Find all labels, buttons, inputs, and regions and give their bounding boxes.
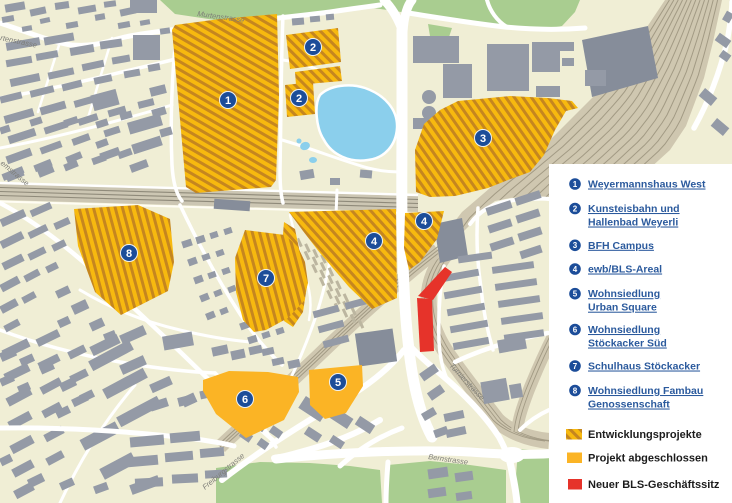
svg-text:3: 3 [573,241,578,250]
svg-text:ewb/BLS-Areal: ewb/BLS-Areal [588,264,662,276]
svg-text:Wohnsiedlung Fambau: Wohnsiedlung Fambau [588,385,703,397]
svg-text:Kunsteisbahn und: Kunsteisbahn und [588,203,680,215]
svg-text:3: 3 [480,133,486,145]
svg-text:Weyermannshaus West: Weyermannshaus West [588,179,706,191]
svg-text:Wohnsiedlung: Wohnsiedlung [588,324,660,336]
svg-text:4: 4 [573,265,578,274]
svg-text:Stöckacker Süd: Stöckacker Süd [588,338,667,350]
svg-text:Projekt abgeschlossen: Projekt abgeschlossen [588,453,708,465]
svg-text:6: 6 [573,325,578,334]
svg-text:Wohnsiedlung: Wohnsiedlung [588,288,660,300]
svg-text:2: 2 [296,93,302,105]
svg-text:BFH Campus: BFH Campus [588,240,654,252]
svg-text:5: 5 [335,377,341,389]
svg-text:2: 2 [573,204,578,213]
svg-text:1: 1 [573,180,578,189]
svg-text:1: 1 [225,95,231,107]
svg-text:Hallenbad Weyerli: Hallenbad Weyerli [588,217,678,229]
svg-text:Schulhaus Stöckacker: Schulhaus Stöckacker [588,361,700,373]
svg-text:8: 8 [126,248,132,260]
svg-text:Genossenschaft: Genossenschaft [588,399,670,411]
svg-text:4: 4 [421,216,428,228]
svg-text:8: 8 [573,386,578,395]
svg-text:7: 7 [263,273,269,285]
svg-text:5: 5 [573,290,578,299]
svg-text:6: 6 [242,394,248,406]
svg-text:Entwicklungsprojekte: Entwicklungsprojekte [588,429,702,441]
svg-text:Urban Square: Urban Square [588,302,657,314]
svg-text:4: 4 [371,236,378,248]
svg-text:2: 2 [310,42,316,54]
svg-text:7: 7 [573,362,578,371]
svg-text:Neuer BLS-Geschäftssitz: Neuer BLS-Geschäftssitz [588,479,720,491]
